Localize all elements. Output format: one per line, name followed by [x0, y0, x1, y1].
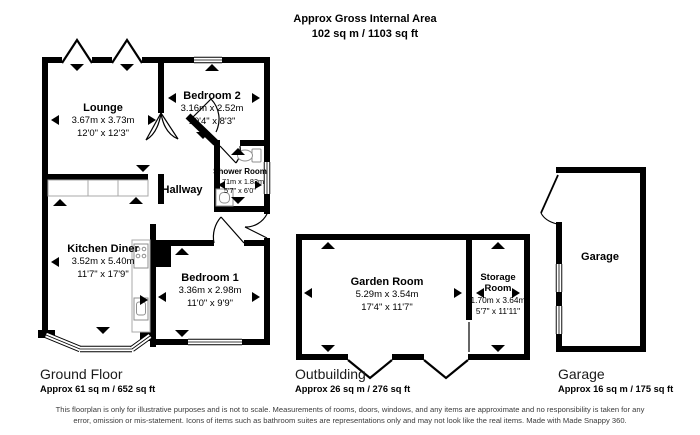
- room-name: Garden Room: [327, 276, 447, 289]
- room-name: Shower Room: [208, 167, 272, 177]
- room-dim-imperial: 11'0" x 9'9": [150, 298, 270, 311]
- disclaimer-text: This floorplan is only for illustrative …: [50, 404, 650, 427]
- door-garage: [541, 175, 558, 224]
- section-ground-floor: Ground Floor Approx 61 sq m / 652 sq ft: [40, 367, 155, 394]
- room-dim-metric: 1.70m x 3.64m: [466, 295, 530, 306]
- chevron-opening-icon: [112, 40, 142, 63]
- chevron-opening-icon: [62, 40, 92, 63]
- bay-window: [46, 335, 150, 349]
- room-dim-imperial: 5'7" x 11'11": [466, 306, 530, 317]
- section-area: Approx 61 sq m / 652 sq ft: [40, 384, 155, 394]
- room-dim-imperial: 17'4" x 11'7": [327, 302, 447, 315]
- section-title: Garage: [558, 367, 673, 382]
- section-area: Approx 26 sq m / 276 sq ft: [295, 384, 410, 394]
- room-dim-imperial: 11'7" x 17'9": [43, 269, 163, 282]
- floorplan-page: Approx Gross Internal Area 102 sq m / 11…: [0, 0, 700, 435]
- room-dim-metric: 5.29m x 3.54m: [327, 289, 447, 302]
- room-label-storage-room: Storage Room 1.70m x 3.64m 5'7" x 11'11": [466, 273, 530, 317]
- room-label-hallway: Hallway: [142, 184, 222, 197]
- room-label-garage: Garage: [560, 251, 640, 264]
- room-name: Kitchen Diner: [43, 243, 163, 256]
- room-label-kitchen-diner: Kitchen Diner 3.52m x 5.40m 11'7" x 17'9…: [43, 243, 163, 281]
- room-name: Garage: [560, 251, 640, 264]
- section-title: Ground Floor: [40, 367, 155, 382]
- door-front: [245, 214, 267, 238]
- header-line1: Approx Gross Internal Area: [215, 12, 515, 27]
- door-bedroom1: [213, 217, 244, 243]
- room-label-bedroom1: Bedroom 1 3.36m x 2.98m 11'0" x 9'9": [150, 272, 270, 310]
- room-dim-metric: 3.16m x 2.52m: [152, 103, 272, 116]
- room-dim-metric: 3.52m x 5.40m: [43, 256, 163, 269]
- room-name: Storage Room: [466, 273, 530, 295]
- french-door-icon: [424, 360, 468, 378]
- section-title: Outbuilding: [295, 367, 410, 382]
- room-dim-metric: 3.36m x 2.98m: [150, 285, 270, 298]
- room-label-garden-room: Garden Room 5.29m x 3.54m 17'4" x 11'7": [327, 276, 447, 314]
- room-name: Lounge: [43, 102, 163, 115]
- room-name: Hallway: [142, 184, 222, 197]
- gross-internal-area-header: Approx Gross Internal Area 102 sq m / 11…: [215, 12, 515, 42]
- section-area: Approx 16 sq m / 175 sq ft: [558, 384, 673, 394]
- room-dim-metric: 3.67m x 3.73m: [43, 115, 163, 128]
- toilet-icon: [238, 149, 262, 162]
- room-dim-imperial: 10'4" x 8'3": [152, 116, 272, 129]
- room-label-lounge: Lounge 3.67m x 3.73m 12'0" x 12'3": [43, 102, 163, 140]
- room-dim-imperial: 12'0" x 12'3": [43, 128, 163, 141]
- room-name: Bedroom 1: [150, 272, 270, 285]
- room-label-bedroom2: Bedroom 2 3.16m x 2.52m 10'4" x 8'3": [152, 90, 272, 128]
- room-name: Bedroom 2: [152, 90, 272, 103]
- section-outbuilding: Outbuilding Approx 26 sq m / 276 sq ft: [295, 367, 410, 394]
- section-garage: Garage Approx 16 sq m / 175 sq ft: [558, 367, 673, 394]
- header-line2: 102 sq m / 1103 sq ft: [215, 27, 515, 42]
